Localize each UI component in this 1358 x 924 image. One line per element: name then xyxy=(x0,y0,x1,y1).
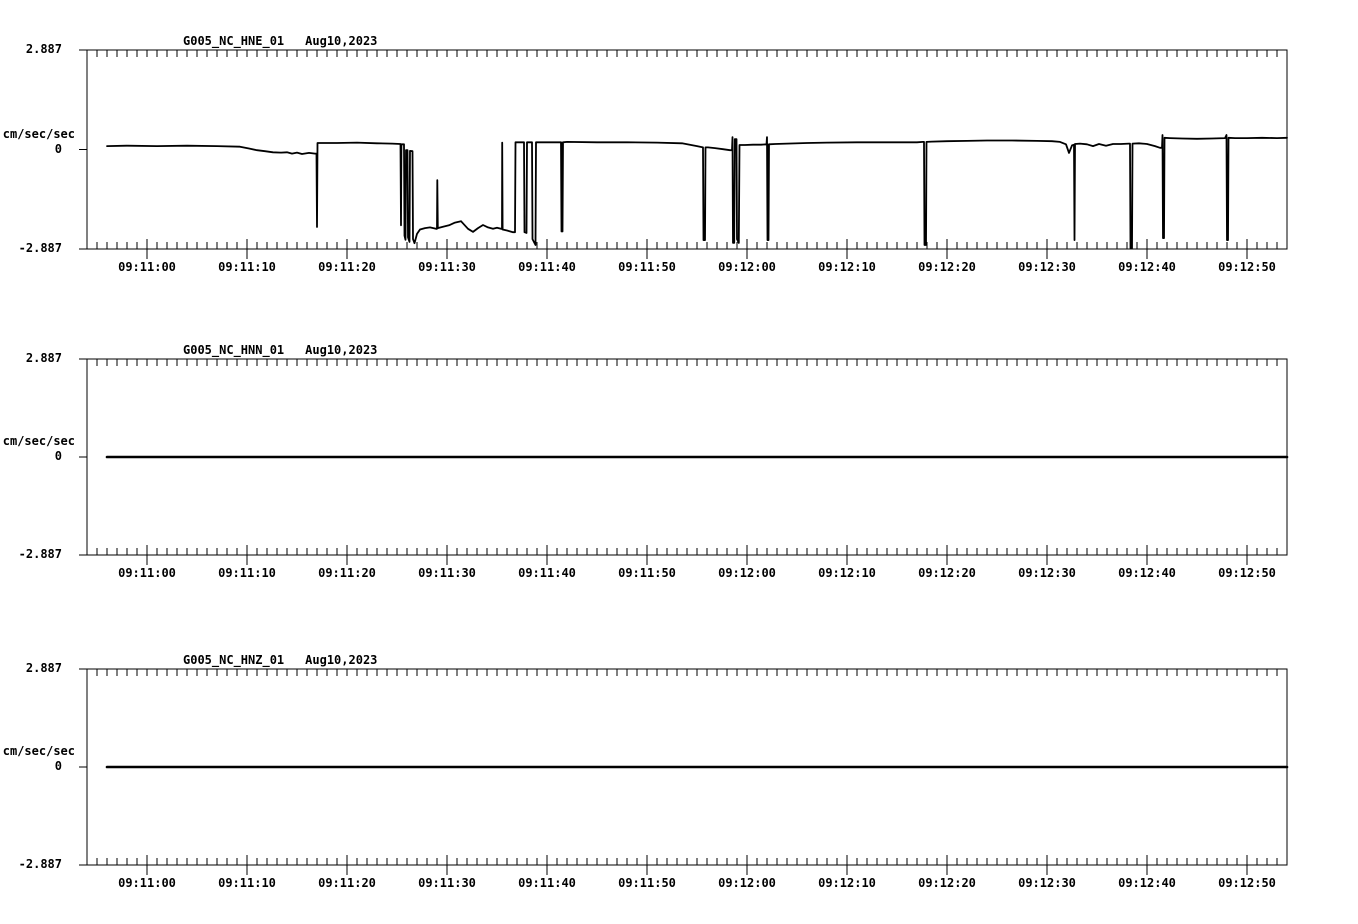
seismogram-panel-hnz: G005_NC_HNZ_01 Aug10,2023 2.887 cm/sec/s… xyxy=(0,0,1358,924)
y-axis-ticks xyxy=(79,669,87,865)
waveform-plot-hnz xyxy=(0,0,1358,924)
seismogram-page: G005_NC_HNE_01 Aug10,2023 2.887 cm/sec/s… xyxy=(0,0,1358,924)
